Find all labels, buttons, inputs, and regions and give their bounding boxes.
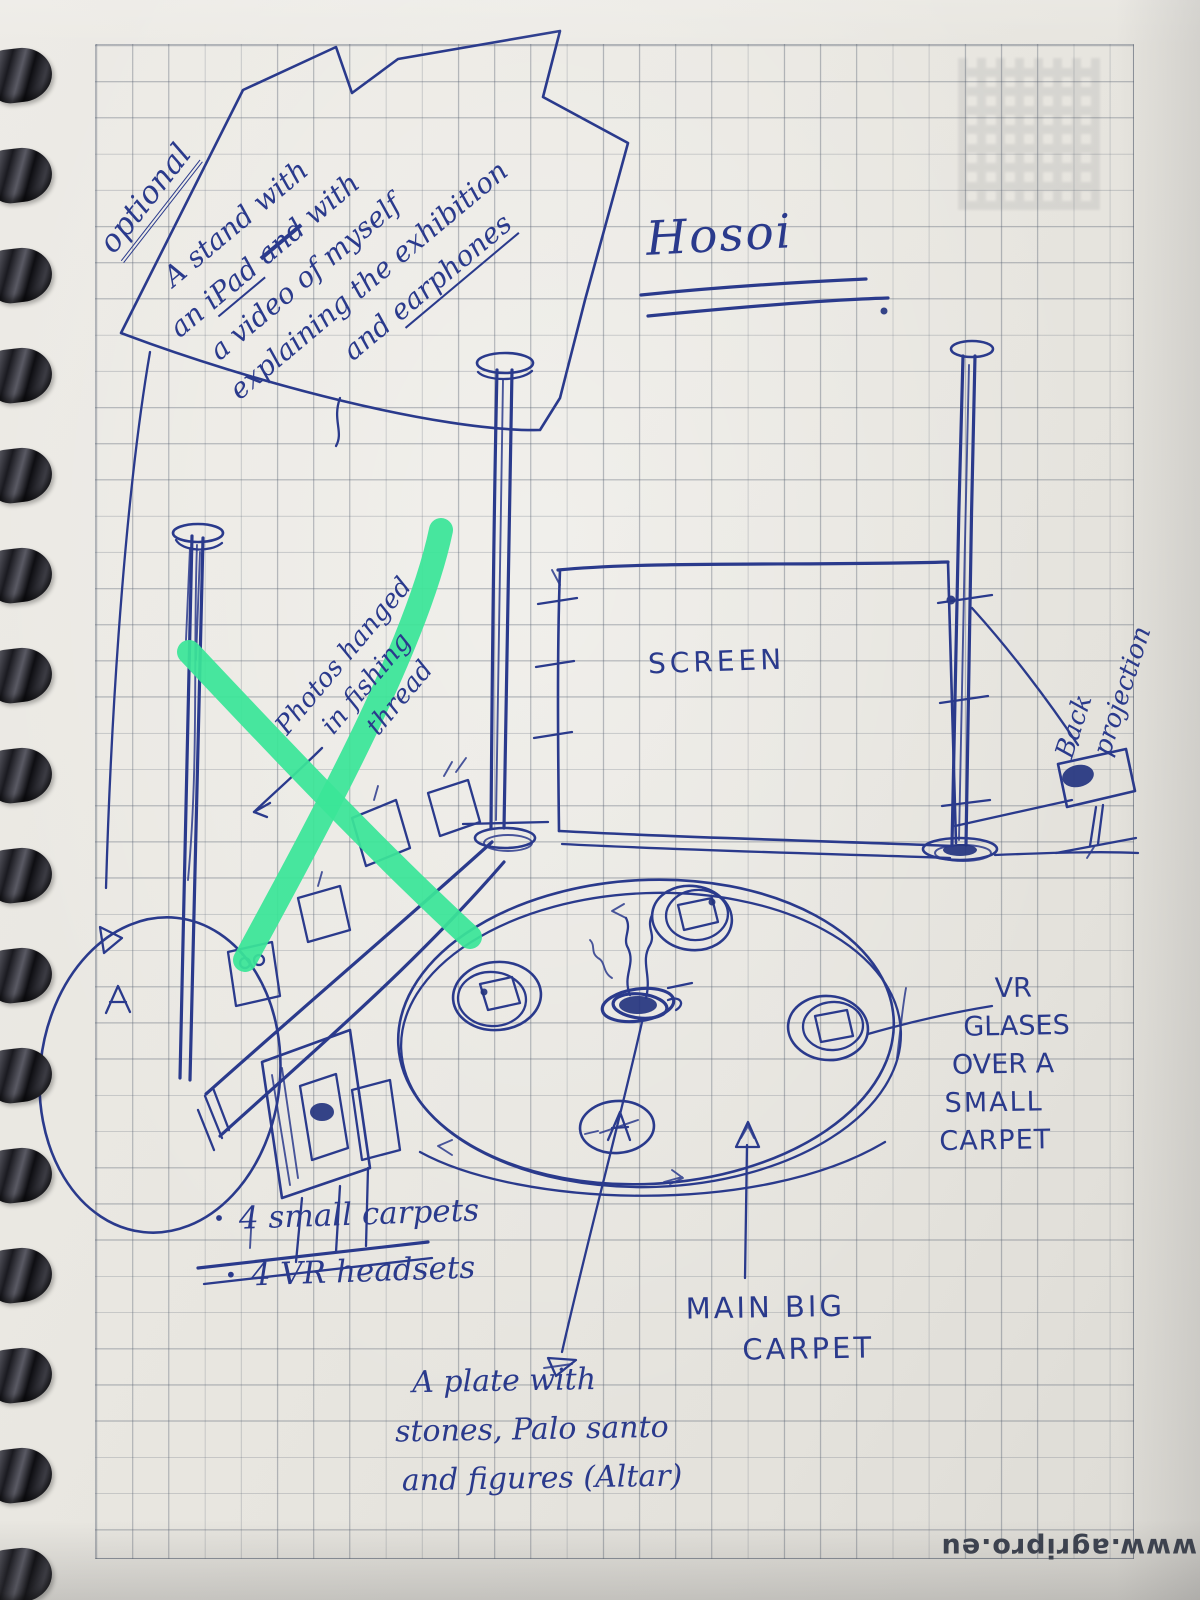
- main-carpet-label: MAIN BIG CARPET: [685, 1284, 874, 1371]
- screen-label: SCREEN: [647, 643, 785, 681]
- center-pole: [463, 353, 548, 851]
- notebook-brand-watermark: www.agripro.eu: [935, 1532, 1197, 1563]
- notebook-photo: optional A stand with an iPad and with a…: [0, 0, 1200, 1600]
- title-underline: [641, 279, 888, 316]
- vr-spot-left: [450, 958, 544, 1033]
- altar-plate: [590, 904, 692, 1026]
- vr-glasses-note: VR GLASES OVER A SMALL CARPET: [936, 969, 1072, 1161]
- altar-note: A plate with stones, Palo santo and figu…: [394, 1354, 683, 1506]
- main-carpet-arrow: [736, 1122, 759, 1278]
- screen-frame: [534, 562, 956, 858]
- left-pole: [173, 524, 223, 1080]
- page-title: Hosoi: [645, 204, 794, 267]
- equipment-list: •4 small carpets •4 VR headsets: [212, 1181, 482, 1304]
- list-item: •4 VR headsets: [224, 1238, 482, 1304]
- photos-on-rail: [228, 758, 480, 1006]
- note-connector-arrow: [100, 352, 150, 1013]
- altar-pointer-arrow: [544, 1022, 642, 1376]
- list-item: •4 small carpets: [212, 1181, 480, 1247]
- big-carpet: [390, 867, 906, 1197]
- vr-spot-right: [785, 993, 870, 1064]
